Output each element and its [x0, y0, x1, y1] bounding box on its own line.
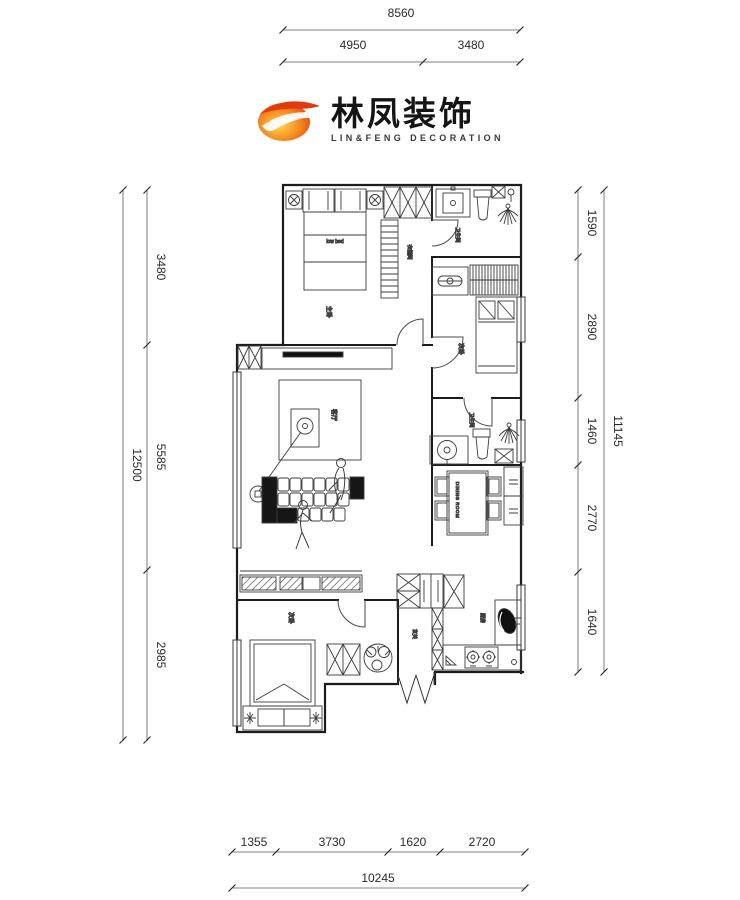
dim-left-total: 12500	[130, 448, 144, 482]
floorplan-page: 林凤装饰 LIN&FENG DECORATION	[0, 0, 740, 900]
dim-right-total: 11145	[611, 415, 625, 447]
room-label-entry: 玄关	[411, 629, 418, 639]
dim-left-seg-3: 2985	[154, 642, 168, 669]
wardrobe-icon	[327, 644, 360, 675]
toilet-icon	[473, 429, 490, 459]
dim-right-seg-2: 2890	[585, 314, 599, 341]
dining-chair	[435, 501, 449, 520]
radiator-wardrobe-icon	[470, 265, 518, 295]
room-label-bathroom-top: 卫生间	[454, 227, 461, 242]
bed-bottom	[243, 640, 322, 730]
toilet-icon	[474, 190, 491, 220]
bed-double	[476, 297, 517, 373]
entry-door-icon	[398, 672, 434, 703]
floor-drain-icon	[495, 449, 513, 463]
window-living-left	[233, 372, 241, 548]
dimension-ticks	[120, 27, 608, 892]
room-label-master-bedroom: 主卧	[325, 306, 333, 318]
clothes-rack-icon	[381, 220, 398, 298]
dining-table	[447, 471, 488, 535]
dim-right-seg-3: 1460	[585, 418, 599, 445]
room-dining: DINING ROOM	[435, 467, 523, 535]
dim-bottom-seg-4: 2720	[469, 835, 496, 849]
shower-icon	[499, 423, 519, 444]
dim-top-seg-2: 3480	[458, 38, 485, 52]
room-label-dining: DINING ROOM	[455, 482, 460, 519]
door-bedroom-bottom	[338, 600, 365, 627]
round-sink-icon	[430, 436, 468, 464]
sliding-partition-icon	[432, 608, 443, 670]
room-bedroom-bottom: 次卧	[243, 612, 392, 730]
cabinet-x-icon	[444, 575, 464, 608]
room-kitchen: 厨房 玄关	[397, 574, 521, 670]
dimension-lines	[123, 30, 604, 888]
bed-note: low bed	[326, 239, 343, 245]
dim-right-seg-1: 1590	[585, 210, 599, 237]
dim-right-seg-4: 2770	[585, 505, 599, 532]
sofa-sectional	[262, 477, 364, 523]
rug-coffee-table	[259, 380, 361, 491]
room-bathroom-top: 卫生间	[436, 186, 518, 243]
dresser-icon	[432, 267, 468, 295]
dining-chair	[435, 477, 449, 496]
stove-icon	[465, 647, 498, 668]
sink-cabinet-icon	[436, 187, 470, 217]
room-label-bedroom-right: 次卧	[457, 343, 465, 355]
window-bedroom-bottom-left	[233, 640, 241, 726]
tv-icon	[283, 352, 343, 357]
dim-bottom-seg-2: 3730	[319, 835, 346, 849]
dim-bottom-seg-3: 1620	[400, 835, 427, 849]
dim-left-seg-1: 3480	[154, 254, 168, 281]
window-bath-right	[517, 420, 525, 462]
room-label-bathroom-mid: 卫生间	[468, 412, 475, 427]
room-label-living: 客厅	[330, 409, 338, 421]
room-bathroom-mid: 卫生间	[430, 412, 519, 464]
corner-fixture-icon	[492, 186, 514, 202]
dim-bottom-seg-1: 1355	[241, 835, 268, 849]
fridge-icon	[397, 574, 420, 608]
dim-top-seg-1: 4950	[340, 38, 367, 52]
corner-cabinet-icon	[238, 346, 261, 369]
dim-top-total: 8560	[388, 6, 415, 20]
dim-right-seg-5: 1640	[585, 609, 599, 636]
window-bedroom-right	[517, 297, 525, 342]
dimension-labels: 8560 4950 3480 12500 3480 5585 2985 1590…	[130, 6, 625, 885]
dining-chair	[487, 501, 501, 520]
door-master-bedroom	[397, 319, 423, 345]
tv-cabinet	[262, 348, 392, 369]
dim-bottom-total: 10245	[361, 871, 395, 885]
drain-mark	[512, 660, 517, 665]
shower-icon	[498, 204, 518, 225]
cabinet-icon	[420, 574, 443, 608]
room-living: 客厅	[238, 346, 392, 592]
partition-wall-hatched	[240, 571, 362, 592]
room-master-bedroom: low bed 衣帽间 主卧	[286, 187, 432, 318]
dim-left-seg-2: 5585	[154, 444, 168, 471]
room-bedroom-right: 次卧	[432, 265, 518, 373]
dining-chair	[487, 477, 501, 496]
floorplan-drawing: low bed 衣帽间 主卧	[0, 0, 740, 900]
counter-corner-mark	[446, 656, 456, 665]
room-label-kitchen: 厨房	[479, 613, 486, 623]
room-label-closet: 衣帽间	[406, 244, 413, 259]
nightstand-icon	[286, 191, 302, 209]
wardrobe-icon	[384, 187, 432, 218]
plant-icon	[364, 644, 392, 672]
inner-walls	[237, 185, 521, 684]
room-label-bedroom-bottom: 次卧	[287, 612, 295, 624]
nightstand-icon	[367, 191, 383, 209]
